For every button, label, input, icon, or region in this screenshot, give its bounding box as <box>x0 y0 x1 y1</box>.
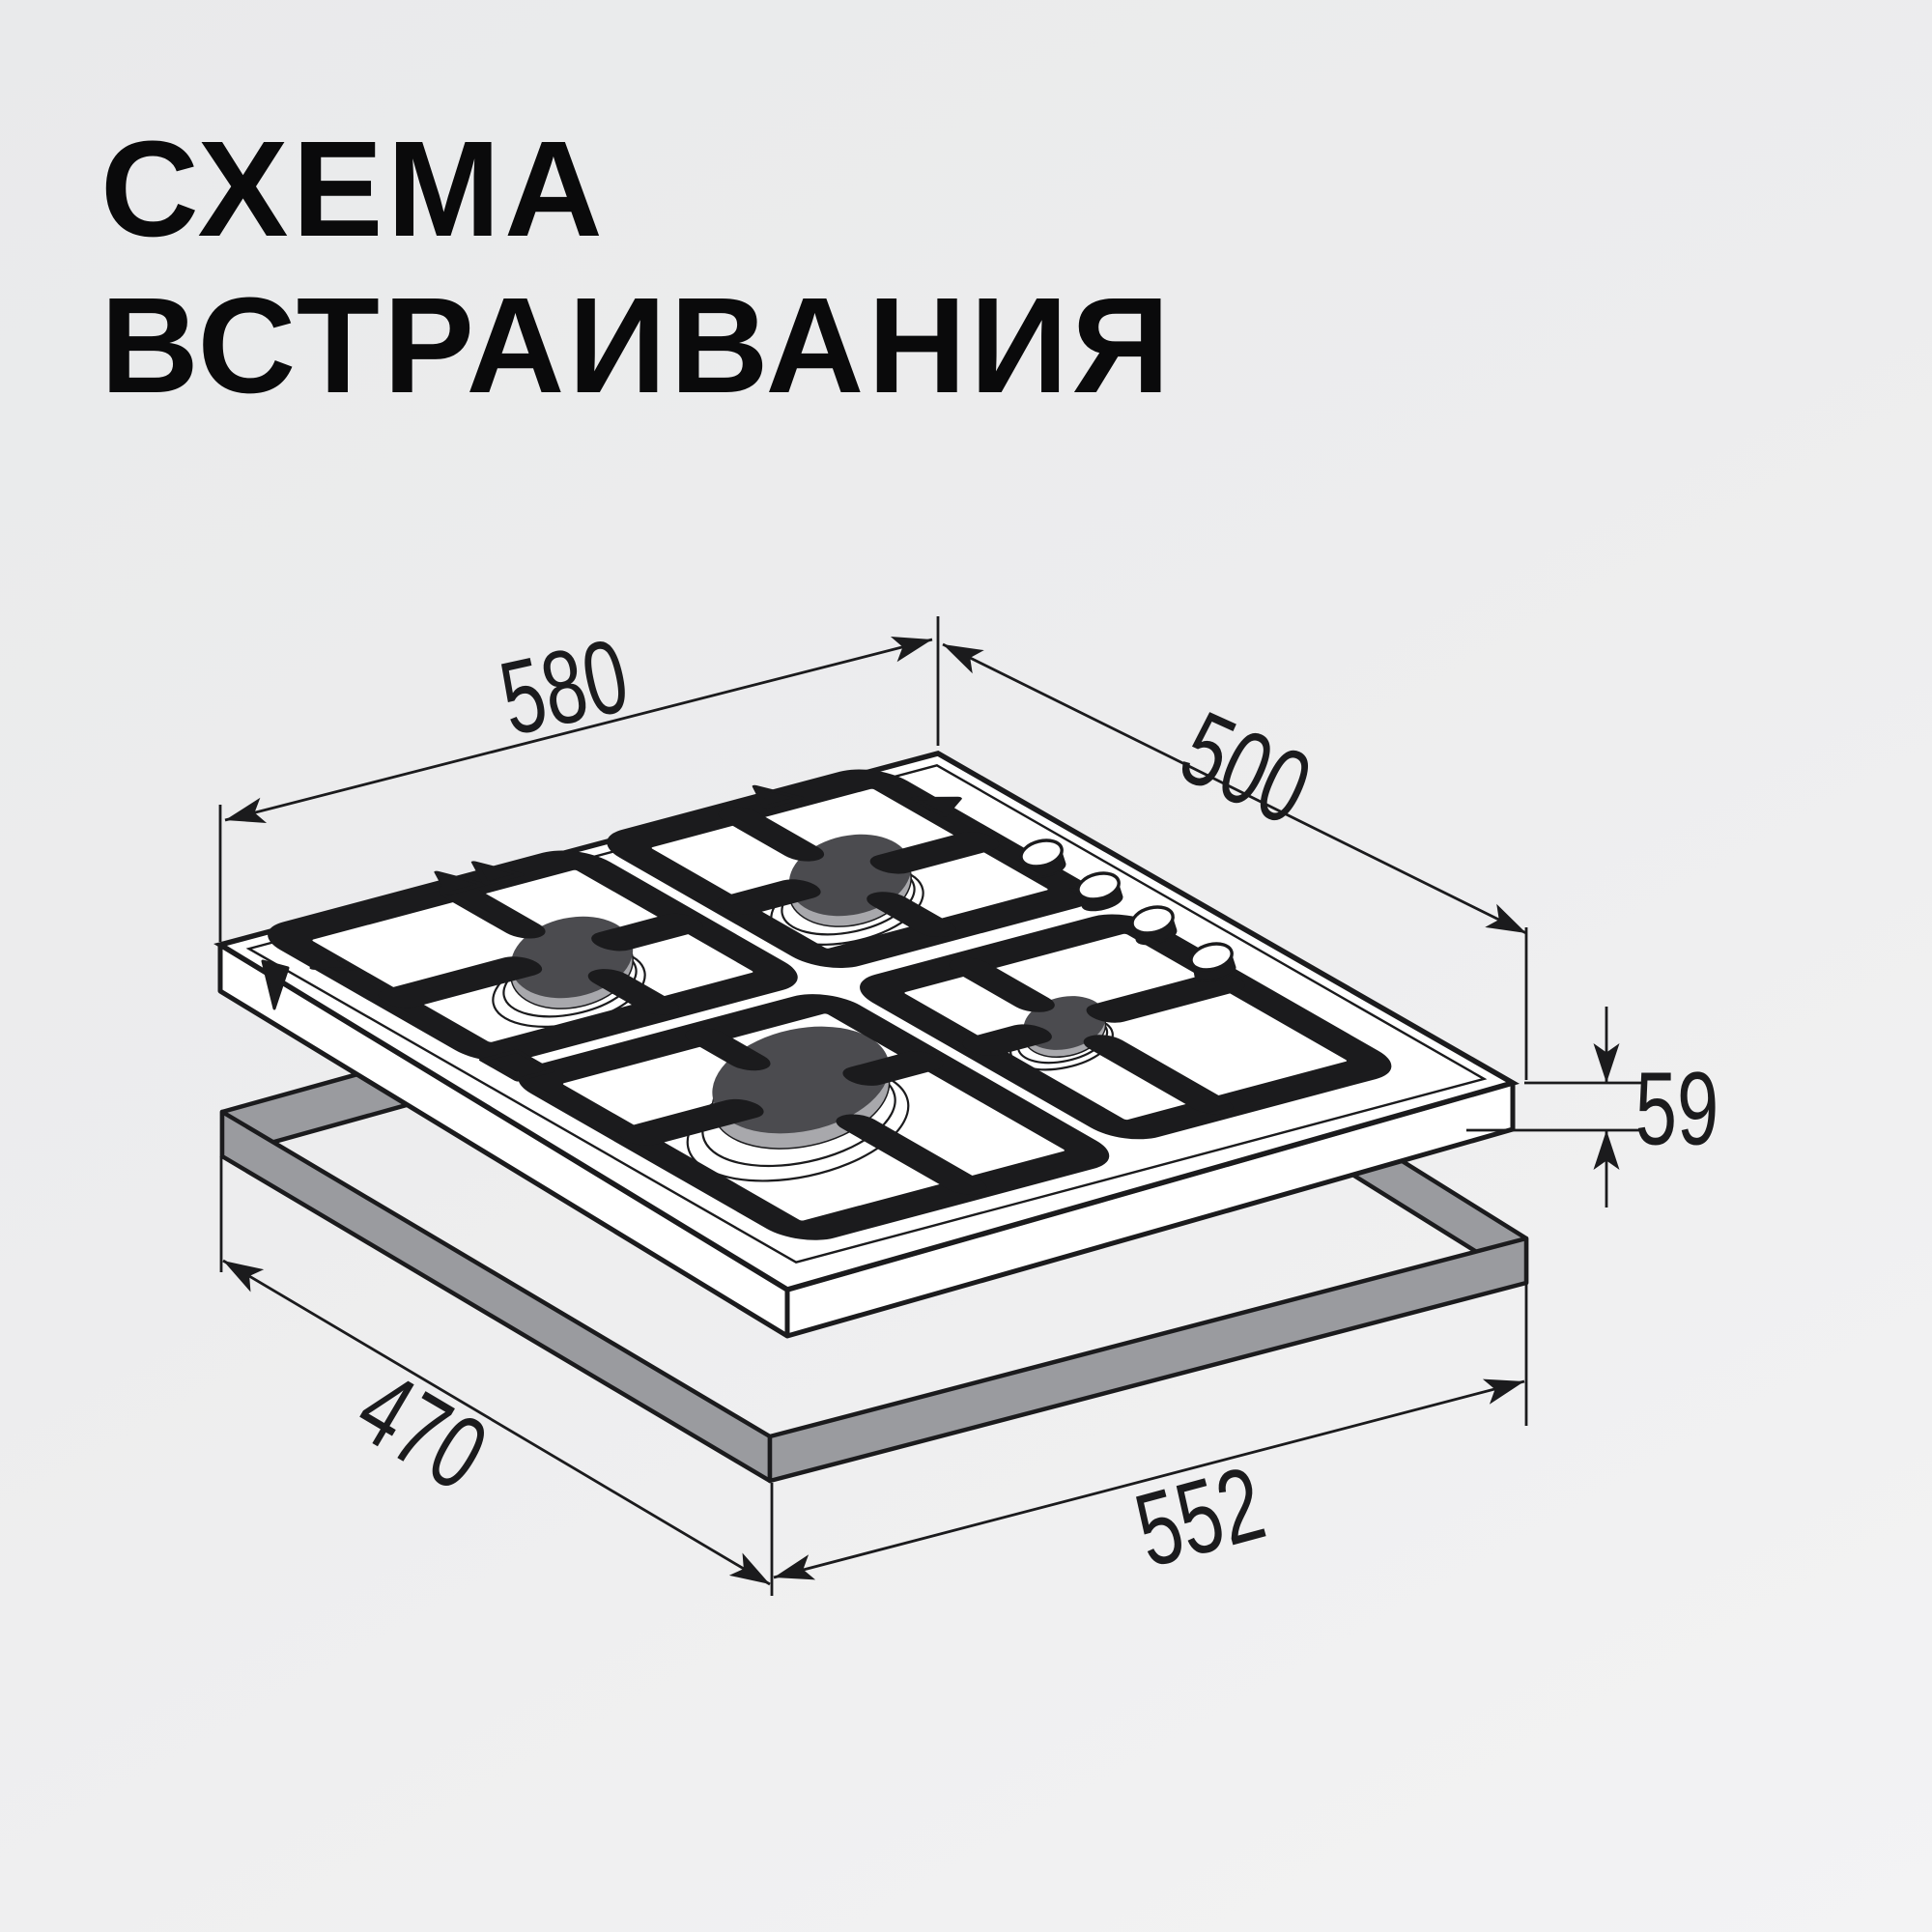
svg-text:59: 59 <box>1635 1050 1719 1167</box>
svg-text:552: 552 <box>1124 1444 1276 1589</box>
svg-text:580: 580 <box>491 616 639 757</box>
svg-text:470: 470 <box>339 1349 506 1513</box>
